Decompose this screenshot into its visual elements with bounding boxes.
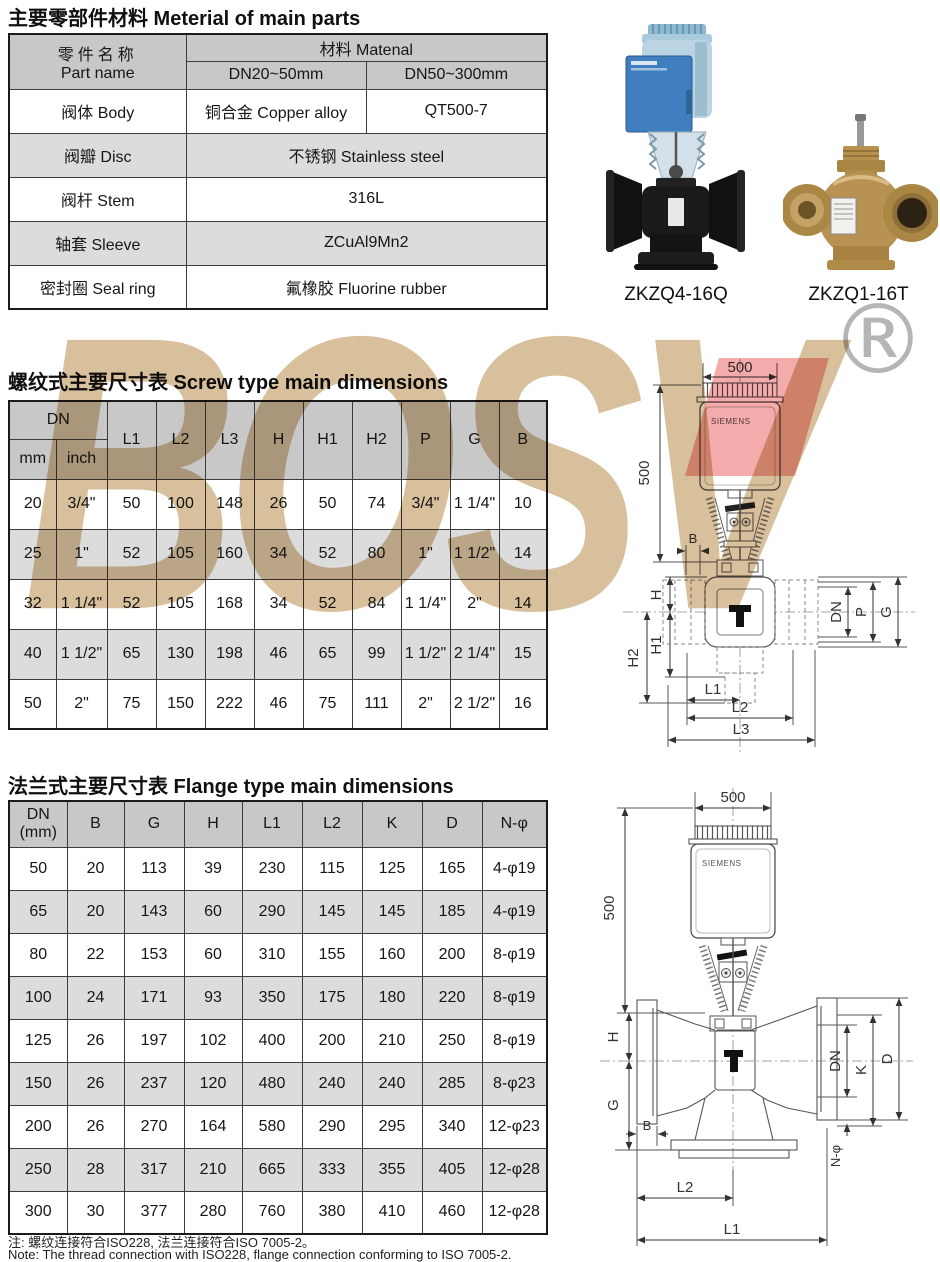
table-cell: 105	[156, 529, 205, 579]
table-cell: 80	[9, 933, 67, 976]
table-cell: 60	[184, 890, 242, 933]
table-cell: 65	[303, 629, 352, 679]
table-cell: 290	[302, 1105, 362, 1148]
screw-col-header: L3	[205, 401, 254, 479]
table-cell: 8-φ19	[482, 976, 547, 1019]
table-cell: 10	[499, 479, 547, 529]
table-cell: 145	[302, 890, 362, 933]
svg-text:L2: L2	[732, 699, 749, 716]
screw-dimensions-table: DN L1 L2 L3 H H1 H2 P G B mm inch 203/4"…	[8, 400, 548, 730]
table-cell: 28	[67, 1148, 124, 1191]
svg-text:L1: L1	[705, 681, 722, 698]
flange-title: 法兰式主要尺寸表 Flange type main dimensions	[8, 770, 454, 799]
table-row: 10024171933501751802208-φ19	[9, 976, 547, 1019]
svg-text:500: 500	[601, 895, 618, 920]
flange-dn-header: DN(mm)	[9, 801, 67, 847]
screw-col-header: H	[254, 401, 303, 479]
table-row: 5020113392301151251654-φ19	[9, 847, 547, 890]
table-cell: 密封圈 Seal ring	[9, 265, 186, 309]
table-cell: 4-φ19	[482, 890, 547, 933]
table-cell: 阀杆 Stem	[9, 177, 186, 221]
table-cell: 160	[205, 529, 254, 579]
table-cell: 300	[9, 1191, 67, 1234]
table-cell: 75	[303, 679, 352, 729]
table-cell: 1 1/2"	[401, 629, 450, 679]
table-cell: 2"	[56, 679, 107, 729]
table-cell: 405	[422, 1148, 482, 1191]
table-cell: 52	[303, 579, 352, 629]
table-cell: 1 1/4"	[450, 479, 499, 529]
table-cell: 30	[67, 1191, 124, 1234]
table-cell: 145	[362, 890, 422, 933]
table-row: 502"7515022246751112"2 1/2"16	[9, 679, 547, 729]
table-cell: 14	[499, 529, 547, 579]
table-cell: 290	[242, 890, 302, 933]
table-cell: 102	[184, 1019, 242, 1062]
table-cell: 200	[422, 933, 482, 976]
table-cell: 50	[9, 679, 56, 729]
table-cell: 12-φ28	[482, 1191, 547, 1234]
table-cell: 不锈钢 Stainless steel	[186, 133, 547, 177]
table-cell: 15	[499, 629, 547, 679]
materials-material-header: 材料 Matenal	[186, 34, 547, 61]
screw-col-header: P	[401, 401, 450, 479]
materials-title: 主要零部件材料 Meterial of main parts	[8, 2, 360, 31]
table-cell: 295	[362, 1105, 422, 1148]
svg-text:B: B	[689, 531, 698, 546]
table-cell: 阀瓣 Disc	[9, 133, 186, 177]
table-cell: 333	[302, 1148, 362, 1191]
flange-col-header: B	[67, 801, 124, 847]
table-row: 401 1/2"651301984665991 1/2"2 1/4"15	[9, 629, 547, 679]
svg-text:500: 500	[727, 359, 752, 376]
table-cell: 143	[124, 890, 184, 933]
table-cell: 1 1/2"	[450, 529, 499, 579]
table-row: 轴套 Sleeve ZCuAl9Mn2	[9, 221, 547, 265]
table-cell: 150	[156, 679, 205, 729]
table-cell: 1"	[401, 529, 450, 579]
materials-range2-header: DN50~300mm	[366, 61, 547, 89]
table-cell: 148	[205, 479, 254, 529]
svg-text:DN: DN	[828, 601, 845, 623]
table-cell: 113	[124, 847, 184, 890]
table-cell: 480	[242, 1062, 302, 1105]
table-row: 6520143602901451451854-φ19	[9, 890, 547, 933]
table-cell: 26	[67, 1105, 124, 1148]
table-cell: 171	[124, 976, 184, 1019]
table-cell: 8-φ23	[482, 1062, 547, 1105]
screw-subcol-inch: inch	[56, 439, 107, 479]
product-photo-zkzq4	[598, 20, 753, 282]
table-cell: 100	[9, 976, 67, 1019]
table-cell: 175	[302, 976, 362, 1019]
screw-col-header: G	[450, 401, 499, 479]
table-cell: 2 1/2"	[450, 679, 499, 729]
table-cell: 8-φ19	[482, 1019, 547, 1062]
table-cell: 153	[124, 933, 184, 976]
table-row: 3003037728076038041046012-φ28	[9, 1191, 547, 1234]
table-cell: 310	[242, 933, 302, 976]
svg-text:500: 500	[720, 789, 745, 806]
svg-text:SIEMENS: SIEMENS	[711, 417, 751, 426]
svg-text:L2: L2	[677, 1179, 694, 1196]
table-cell: 24	[67, 976, 124, 1019]
table-cell: 125	[362, 847, 422, 890]
table-row: 阀杆 Stem 316L	[9, 177, 547, 221]
table-cell: 50	[107, 479, 156, 529]
svg-text:B: B	[643, 1118, 652, 1133]
flange-dimensions-table: DN(mm) B G H L1 L2 K D N-φ 5020113392301…	[8, 800, 548, 1235]
table-row: 203/4"501001482650743/4"1 1/4"10	[9, 479, 547, 529]
product-photo-zkzq1	[783, 112, 938, 280]
table-cell: 250	[9, 1148, 67, 1191]
catalog-page: { "watermark": { "text": "BOSV", "regist…	[0, 0, 940, 1262]
table-cell: 1 1/2"	[56, 629, 107, 679]
table-cell: 46	[254, 679, 303, 729]
table-cell: 210	[362, 1019, 422, 1062]
table-cell: 180	[362, 976, 422, 1019]
screw-subcol-mm: mm	[9, 439, 56, 479]
materials-table: 零件名称 Part name 材料 Matenal DN20~50mm DN50…	[8, 33, 548, 310]
table-cell: 250	[422, 1019, 482, 1062]
table-cell: ZCuAl9Mn2	[186, 221, 547, 265]
table-cell: 16	[499, 679, 547, 729]
table-cell: 377	[124, 1191, 184, 1234]
table-row: 8022153603101551602008-φ19	[9, 933, 547, 976]
table-cell: 665	[242, 1148, 302, 1191]
table-cell: 1"	[56, 529, 107, 579]
table-cell: 160	[362, 933, 422, 976]
svg-text:DN: DN	[827, 1050, 844, 1072]
table-cell: 155	[302, 933, 362, 976]
table-cell: 26	[67, 1019, 124, 1062]
table-cell: 230	[242, 847, 302, 890]
table-cell: 8-φ19	[482, 933, 547, 976]
table-cell: 4-φ19	[482, 847, 547, 890]
svg-text:H: H	[648, 590, 665, 601]
table-cell: 3/4"	[401, 479, 450, 529]
flange-type-drawing: SIEMENS 500 500 H G B DN K D N-φ L2 L	[555, 778, 940, 1262]
table-cell: 52	[107, 529, 156, 579]
table-cell: 50	[9, 847, 67, 890]
flange-col-header: L2	[302, 801, 362, 847]
table-cell: 220	[422, 976, 482, 1019]
screw-col-header: L2	[156, 401, 205, 479]
svg-text:L1: L1	[724, 1221, 741, 1238]
screw-col-header: H2	[352, 401, 401, 479]
table-row: 阀瓣 Disc 不锈钢 Stainless steel	[9, 133, 547, 177]
svg-text:G: G	[878, 606, 895, 618]
table-cell: 3/4"	[56, 479, 107, 529]
svg-text:K: K	[853, 1065, 870, 1075]
table-row: 2502831721066533335540512-φ28	[9, 1148, 547, 1191]
table-cell: 120	[184, 1062, 242, 1105]
table-cell: QT500-7	[366, 89, 547, 133]
table-cell: 50	[303, 479, 352, 529]
svg-text:H: H	[605, 1032, 622, 1043]
table-cell: 316L	[186, 177, 547, 221]
table-cell: 280	[184, 1191, 242, 1234]
screw-title: 螺纹式主要尺寸表 Screw type main dimensions	[8, 366, 448, 395]
svg-text:500: 500	[636, 460, 653, 485]
table-cell: 111	[352, 679, 401, 729]
table-cell: 125	[9, 1019, 67, 1062]
table-cell: 168	[205, 579, 254, 629]
table-cell: 222	[205, 679, 254, 729]
svg-text:P: P	[853, 607, 870, 617]
table-cell: 164	[184, 1105, 242, 1148]
table-cell: 2"	[401, 679, 450, 729]
table-cell: 轴套 Sleeve	[9, 221, 186, 265]
table-cell: 80	[352, 529, 401, 579]
table-cell: 340	[422, 1105, 482, 1148]
table-cell: 460	[422, 1191, 482, 1234]
table-cell: 165	[422, 847, 482, 890]
table-cell: 317	[124, 1148, 184, 1191]
table-cell: 240	[362, 1062, 422, 1105]
table-cell: 22	[67, 933, 124, 976]
table-cell: 99	[352, 629, 401, 679]
flange-col-header: N-φ	[482, 801, 547, 847]
table-cell: 150	[9, 1062, 67, 1105]
table-cell: 200	[9, 1105, 67, 1148]
table-row: 321 1/4"521051683452841 1/4"2"14	[9, 579, 547, 629]
svg-text:H1: H1	[648, 635, 665, 654]
screw-dn-header: DN	[9, 401, 107, 439]
svg-text:N-φ: N-φ	[828, 1145, 843, 1167]
table-cell: 93	[184, 976, 242, 1019]
table-cell: 115	[302, 847, 362, 890]
svg-text:L3: L3	[733, 721, 750, 738]
table-cell: 40	[9, 629, 56, 679]
table-cell: 20	[67, 890, 124, 933]
table-row: 150262371204802402402858-φ23	[9, 1062, 547, 1105]
table-cell: 1 1/4"	[401, 579, 450, 629]
table-cell: 46	[254, 629, 303, 679]
table-cell: 237	[124, 1062, 184, 1105]
materials-partname-header: 零件名称 Part name	[9, 34, 186, 89]
table-cell: 197	[124, 1019, 184, 1062]
table-cell: 75	[107, 679, 156, 729]
table-row: 251"521051603452801"1 1/2"14	[9, 529, 547, 579]
table-cell: 20	[67, 847, 124, 890]
table-cell: 198	[205, 629, 254, 679]
table-cell: 25	[9, 529, 56, 579]
screw-col-header: B	[499, 401, 547, 479]
table-cell: 1 1/4"	[56, 579, 107, 629]
table-cell: 12-φ23	[482, 1105, 547, 1148]
table-cell: 20	[9, 479, 56, 529]
table-cell: 285	[422, 1062, 482, 1105]
table-cell: 380	[302, 1191, 362, 1234]
table-row: 密封圈 Seal ring 氟橡胶 Fluorine rubber	[9, 265, 547, 309]
table-cell: 14	[499, 579, 547, 629]
table-cell: 34	[254, 579, 303, 629]
table-cell: 26	[254, 479, 303, 529]
screw-col-header: H1	[303, 401, 352, 479]
table-cell: 100	[156, 479, 205, 529]
table-cell: 氟橡胶 Fluorine rubber	[186, 265, 547, 309]
flange-col-header: G	[124, 801, 184, 847]
screw-type-drawing: SIEMENS 500 500 B H H1 H2 DN P G L1 L2 L…	[565, 355, 940, 760]
screw-col-header: L1	[107, 401, 156, 479]
table-cell: 26	[67, 1062, 124, 1105]
table-cell: 52	[303, 529, 352, 579]
flange-col-header: D	[422, 801, 482, 847]
svg-text:D: D	[879, 1053, 896, 1064]
table-cell: 410	[362, 1191, 422, 1234]
table-cell: 65	[107, 629, 156, 679]
flange-col-header: L1	[242, 801, 302, 847]
table-cell: 52	[107, 579, 156, 629]
table-cell: 240	[302, 1062, 362, 1105]
product-model-label: ZKZQ4-16Q	[600, 284, 752, 306]
table-cell: 铜合金 Copper alloy	[186, 89, 366, 133]
flange-col-header: K	[362, 801, 422, 847]
table-cell: 400	[242, 1019, 302, 1062]
table-cell: 74	[352, 479, 401, 529]
table-cell: 65	[9, 890, 67, 933]
table-cell: 210	[184, 1148, 242, 1191]
table-cell: 60	[184, 933, 242, 976]
table-cell: 2 1/4"	[450, 629, 499, 679]
table-cell: 84	[352, 579, 401, 629]
table-cell: 39	[184, 847, 242, 890]
table-cell: 105	[156, 579, 205, 629]
table-cell: 185	[422, 890, 482, 933]
table-cell: 760	[242, 1191, 302, 1234]
svg-text:H2: H2	[625, 648, 642, 667]
svg-text:G: G	[605, 1099, 622, 1111]
table-row: 125261971024002002102508-φ19	[9, 1019, 547, 1062]
table-row: 阀体 Body 铜合金 Copper alloy QT500-7	[9, 89, 547, 133]
table-cell: 阀体 Body	[9, 89, 186, 133]
table-cell: 200	[302, 1019, 362, 1062]
table-cell: 580	[242, 1105, 302, 1148]
table-row: 2002627016458029029534012-φ23	[9, 1105, 547, 1148]
table-cell: 350	[242, 976, 302, 1019]
svg-text:SIEMENS: SIEMENS	[702, 859, 742, 868]
flange-col-header: H	[184, 801, 242, 847]
table-cell: 32	[9, 579, 56, 629]
table-cell: 270	[124, 1105, 184, 1148]
table-cell: 12-φ28	[482, 1148, 547, 1191]
table-cell: 34	[254, 529, 303, 579]
table-cell: 355	[362, 1148, 422, 1191]
materials-range1-header: DN20~50mm	[186, 61, 366, 89]
note-en: Note: The thread connection with ISO228,…	[8, 1247, 511, 1262]
table-cell: 2"	[450, 579, 499, 629]
product-model-label: ZKZQ1-16T	[786, 284, 931, 306]
table-cell: 130	[156, 629, 205, 679]
